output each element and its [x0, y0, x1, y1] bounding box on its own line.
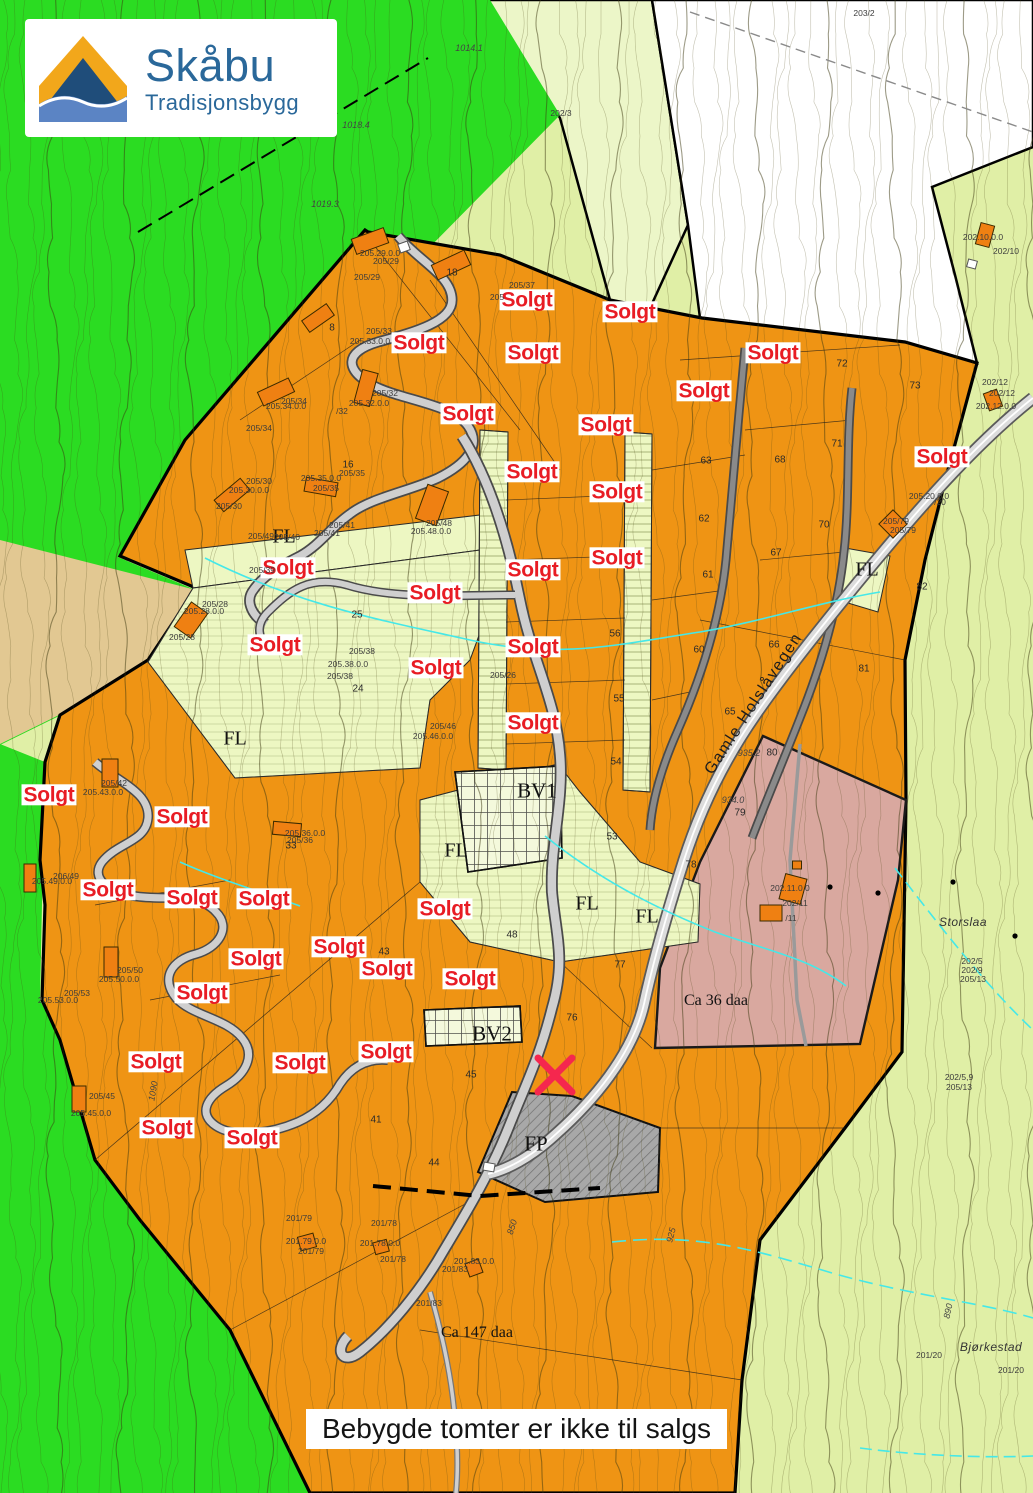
zone-polygons [0, 0, 1033, 1493]
logo-house-icon [33, 28, 133, 128]
building [793, 861, 802, 869]
building [967, 259, 978, 269]
logo: Skåbu Tradisjonsbygg [25, 19, 337, 137]
building [72, 1086, 86, 1112]
logo-title: Skåbu [145, 43, 299, 88]
building [483, 1162, 495, 1172]
building [760, 905, 782, 921]
building [104, 947, 118, 977]
bottom-banner: Bebygde tomter er ikke til salgs [306, 1409, 727, 1449]
map-svg [0, 0, 1033, 1493]
logo-subtitle: Tradisjonsbygg [145, 92, 299, 114]
building [102, 759, 118, 787]
map-page: { "logo": {"title": "Skåbu", "subtitle":… [0, 0, 1033, 1493]
building [272, 821, 301, 836]
logo-text: Skåbu Tradisjonsbygg [145, 43, 299, 114]
building [24, 864, 36, 892]
